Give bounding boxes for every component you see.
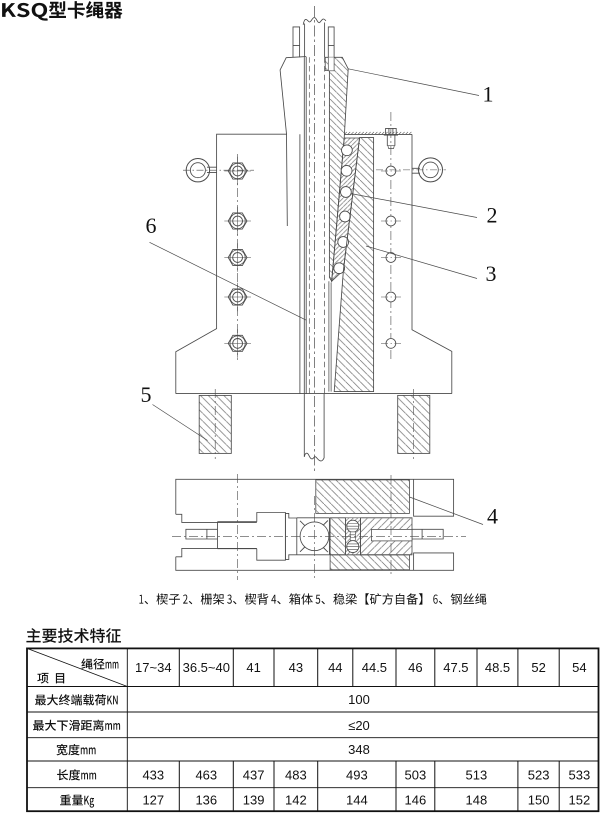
svg-text:139: 139	[243, 793, 265, 808]
svg-text:54: 54	[572, 660, 586, 675]
svg-text:463: 463	[195, 767, 217, 782]
svg-text:503: 503	[405, 767, 427, 782]
svg-text:2: 2	[487, 202, 498, 227]
svg-text:493: 493	[346, 767, 368, 782]
svg-text:44: 44	[328, 660, 342, 675]
svg-text:142: 142	[285, 793, 307, 808]
svg-text:4: 4	[487, 504, 498, 529]
svg-text:41: 41	[246, 660, 260, 675]
svg-text:3: 3	[486, 261, 497, 286]
svg-text:≤20: ≤20	[348, 718, 370, 733]
svg-text:100: 100	[348, 692, 370, 707]
svg-text:36.5~40: 36.5~40	[183, 660, 230, 675]
svg-text:46: 46	[408, 660, 422, 675]
svg-text:144: 144	[346, 793, 368, 808]
svg-text:6: 6	[146, 213, 157, 238]
svg-text:533: 533	[569, 767, 591, 782]
svg-text:136: 136	[195, 793, 217, 808]
svg-text:437: 437	[243, 767, 265, 782]
svg-text:150: 150	[528, 793, 550, 808]
svg-text:433: 433	[142, 767, 164, 782]
svg-text:348: 348	[348, 742, 370, 757]
svg-text:5: 5	[141, 382, 152, 407]
svg-text:146: 146	[405, 793, 427, 808]
svg-text:48.5: 48.5	[485, 660, 510, 675]
svg-text:513: 513	[466, 767, 488, 782]
svg-text:44.5: 44.5	[362, 660, 387, 675]
svg-text:523: 523	[528, 767, 550, 782]
svg-text:47.5: 47.5	[443, 660, 468, 675]
svg-text:148: 148	[466, 793, 488, 808]
svg-text:127: 127	[142, 793, 164, 808]
svg-text:52: 52	[531, 660, 545, 675]
svg-text:43: 43	[289, 660, 303, 675]
svg-text:1: 1	[483, 82, 494, 107]
svg-text:483: 483	[285, 767, 307, 782]
svg-text:17~34: 17~34	[135, 660, 172, 675]
svg-text:152: 152	[569, 793, 591, 808]
